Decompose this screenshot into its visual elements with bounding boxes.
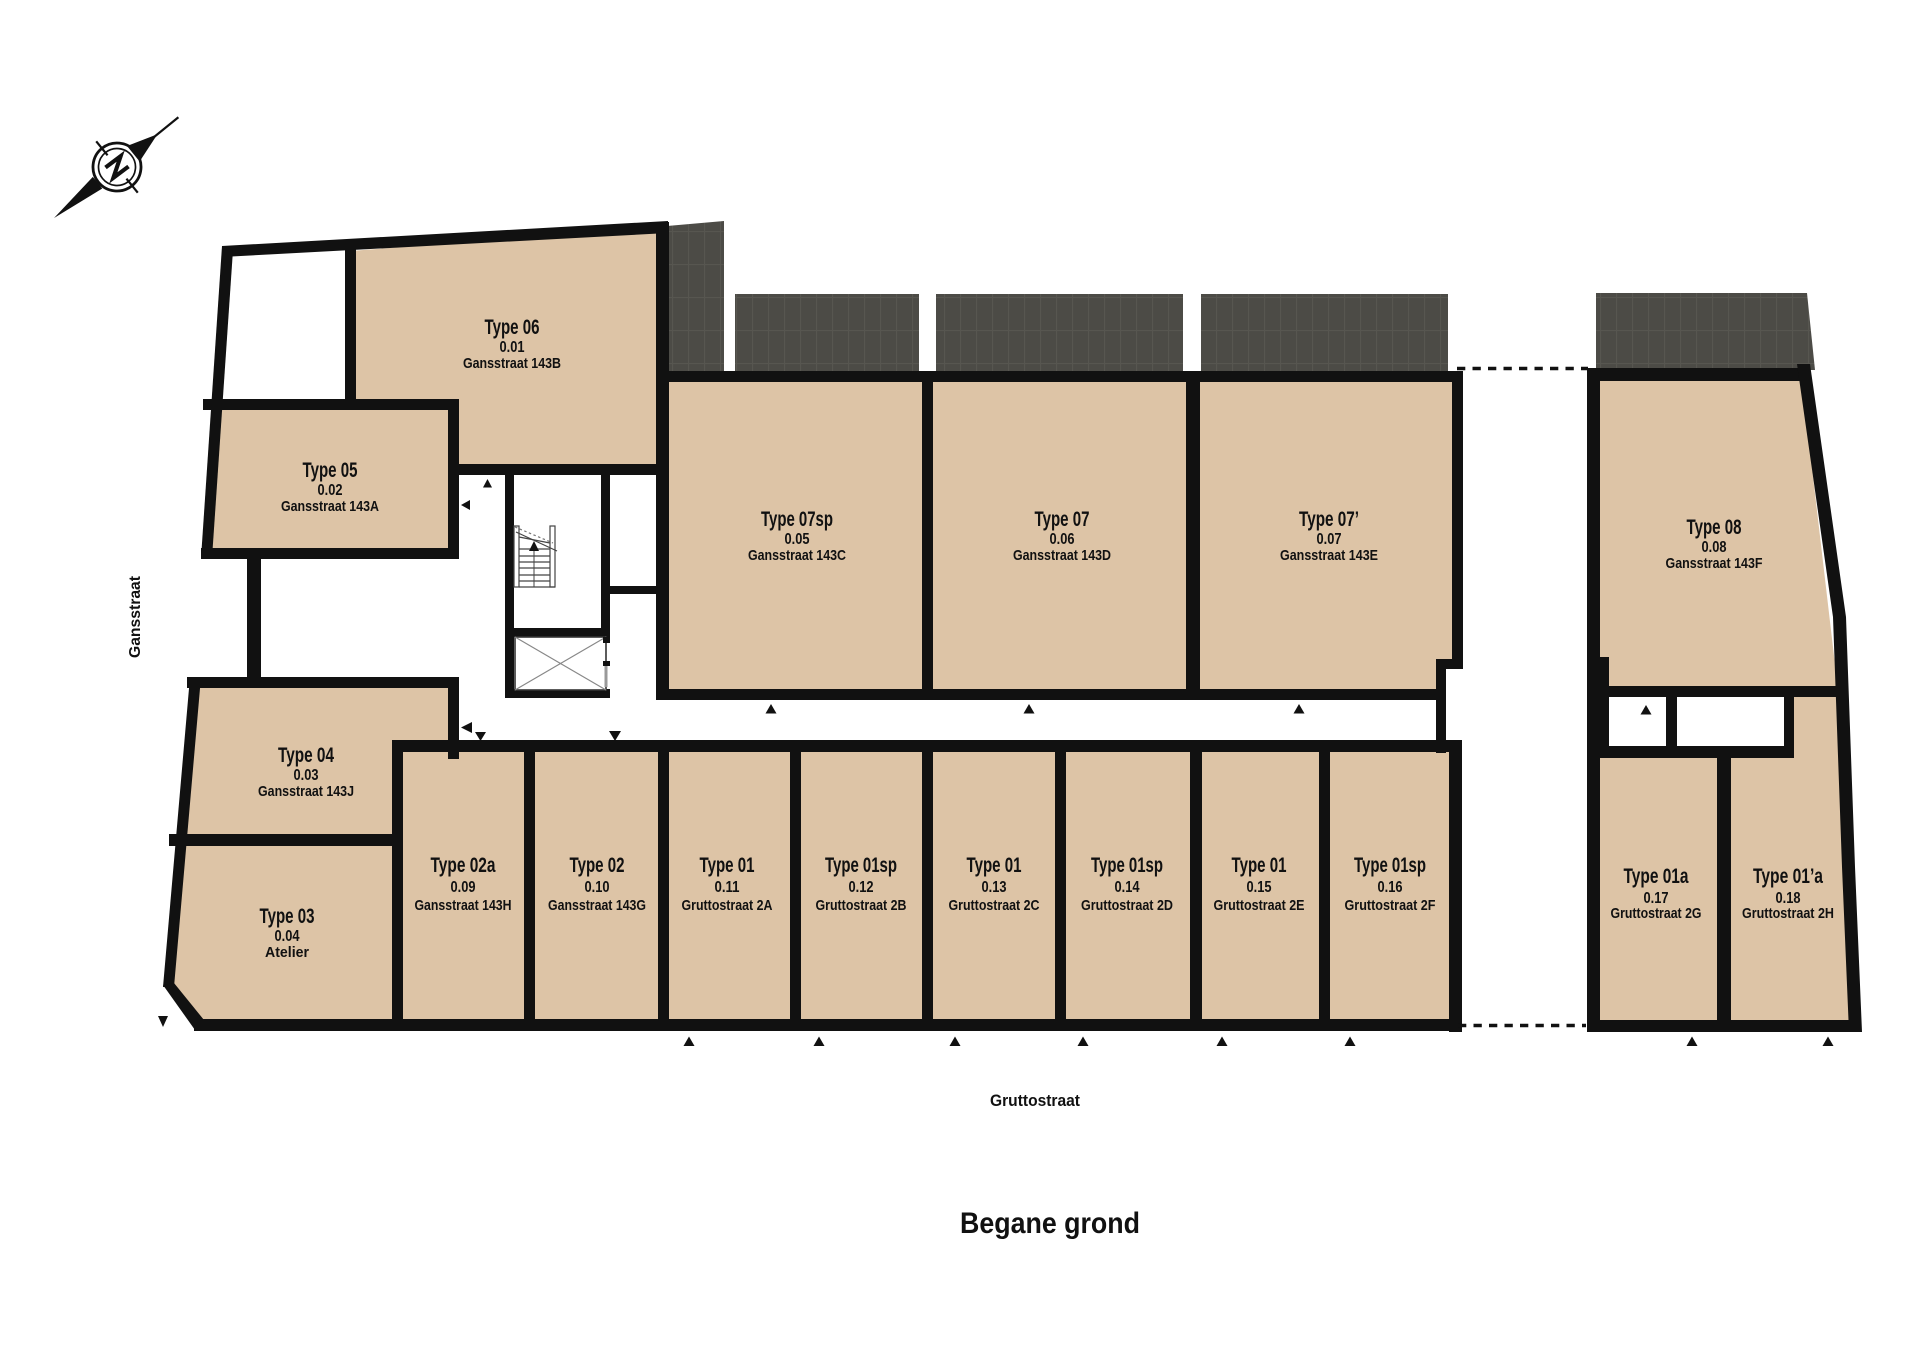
svg-text:Type 02: Type 02 [570,854,625,877]
svg-text:0.03: 0.03 [294,767,319,784]
svg-text:0.08: 0.08 [1702,539,1727,556]
svg-text:Type 01’a: Type 01’a [1753,865,1823,888]
svg-text:0.09: 0.09 [451,879,476,896]
svg-text:Gansstraat 143C: Gansstraat 143C [748,547,846,564]
svg-text:Gruttostraat 2B: Gruttostraat 2B [816,897,907,914]
svg-text:Type 01sp: Type 01sp [825,854,897,877]
svg-text:Gruttostraat 2G: Gruttostraat 2G [1611,905,1702,922]
svg-text:Type 01sp: Type 01sp [1354,854,1426,877]
svg-text:0.02: 0.02 [318,482,343,499]
svg-text:Type 01: Type 01 [1232,854,1287,877]
svg-text:Type 01: Type 01 [700,854,755,877]
svg-text:Type 07sp: Type 07sp [761,508,833,531]
svg-text:Gruttostraat: Gruttostraat [990,1091,1080,1110]
svg-text:0.14: 0.14 [1115,879,1140,896]
svg-text:Type 08: Type 08 [1687,516,1742,539]
svg-text:0.10: 0.10 [585,879,610,896]
svg-text:0.05: 0.05 [785,531,810,548]
svg-text:0.01: 0.01 [500,339,525,356]
svg-text:Gansstraat 143G: Gansstraat 143G [548,897,646,914]
svg-text:Type 04: Type 04 [278,744,334,767]
svg-text:Gruttostraat 2D: Gruttostraat 2D [1081,897,1173,914]
svg-text:Type 01a: Type 01a [1624,865,1689,888]
svg-text:Type 05: Type 05 [303,459,358,482]
svg-text:Gruttostraat 2A: Gruttostraat 2A [682,897,773,914]
svg-text:Type 03: Type 03 [260,905,315,928]
svg-text:0.15: 0.15 [1247,879,1272,896]
svg-text:Atelier: Atelier [265,944,309,961]
svg-text:0.16: 0.16 [1378,879,1403,896]
svg-text:Gruttostraat 2H: Gruttostraat 2H [1742,905,1834,922]
svg-text:Begane grond: Begane grond [960,1207,1140,1240]
svg-text:Gansstraat 143J: Gansstraat 143J [258,783,354,800]
svg-text:0.12: 0.12 [849,879,874,896]
svg-text:Gansstraat 143D: Gansstraat 143D [1013,547,1111,564]
svg-text:Type 06: Type 06 [485,316,540,339]
svg-text:Type 01: Type 01 [967,854,1022,877]
svg-text:0.04: 0.04 [275,928,300,945]
svg-text:Type 07’: Type 07’ [1299,508,1359,531]
svg-text:Gansstraat: Gansstraat [127,575,144,658]
svg-text:0.07: 0.07 [1317,531,1342,548]
svg-text:0.06: 0.06 [1050,531,1075,548]
svg-text:Type 07: Type 07 [1035,508,1090,531]
svg-text:Gansstraat 143E: Gansstraat 143E [1280,547,1378,564]
svg-text:Gruttostraat 2C: Gruttostraat 2C [949,897,1040,914]
svg-text:Gruttostraat 2F: Gruttostraat 2F [1345,897,1436,914]
svg-text:0.11: 0.11 [715,879,740,896]
svg-text:Gansstraat 143H: Gansstraat 143H [415,897,512,914]
svg-text:Gruttostraat 2E: Gruttostraat 2E [1214,897,1305,914]
svg-text:Type 02a: Type 02a [431,854,496,877]
svg-text:Gansstraat 143F: Gansstraat 143F [1666,555,1763,572]
svg-text:Gansstraat 143B: Gansstraat 143B [463,355,561,372]
svg-text:0.13: 0.13 [982,879,1007,896]
svg-text:Type 01sp: Type 01sp [1091,854,1163,877]
svg-text:Gansstraat 143A: Gansstraat 143A [281,498,379,515]
